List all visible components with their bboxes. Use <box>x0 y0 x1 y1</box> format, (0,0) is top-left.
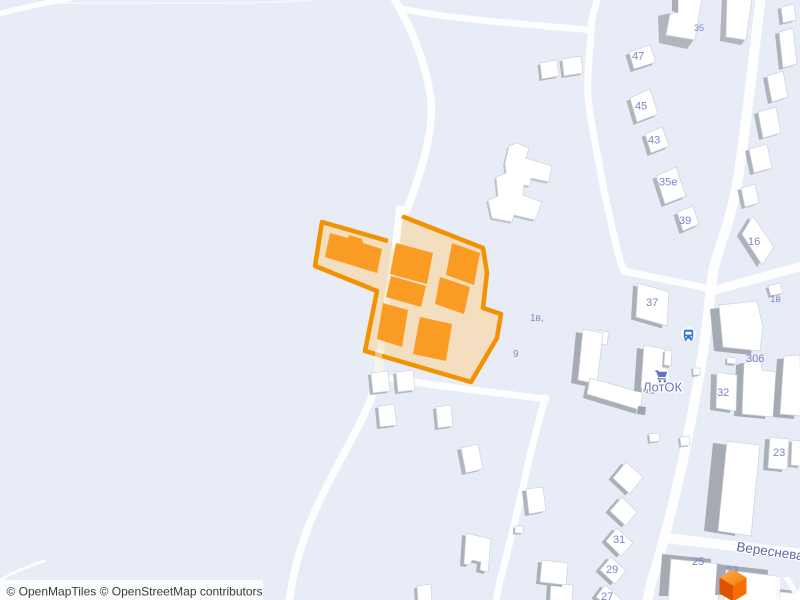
svg-text:306: 306 <box>746 353 764 365</box>
svg-text:31: 31 <box>613 534 625 546</box>
svg-text:1в: 1в <box>770 294 781 305</box>
svg-text:29: 29 <box>606 564 618 576</box>
svg-text:23: 23 <box>773 447 785 459</box>
svg-text:1в,: 1в, <box>530 313 544 324</box>
svg-text:35: 35 <box>694 23 704 33</box>
svg-text:ЛотОК: ЛотОК <box>643 380 683 395</box>
svg-text:32: 32 <box>717 387 729 399</box>
svg-text:45: 45 <box>635 101 647 113</box>
svg-text:27: 27 <box>601 591 613 600</box>
svg-text:39: 39 <box>679 215 691 227</box>
svg-text:35е: 35е <box>659 177 677 189</box>
svg-text:9: 9 <box>513 349 519 360</box>
svg-text:37: 37 <box>646 297 658 309</box>
svg-text:25: 25 <box>692 556 704 568</box>
svg-text:© OpenMapTiles © OpenStreetMap: © OpenMapTiles © OpenStreetMap contribut… <box>7 585 263 599</box>
svg-text:ЛУН: ЛУН <box>752 568 800 600</box>
svg-text:47: 47 <box>632 51 644 63</box>
svg-text:43: 43 <box>648 135 660 147</box>
svg-text:16: 16 <box>748 236 760 248</box>
